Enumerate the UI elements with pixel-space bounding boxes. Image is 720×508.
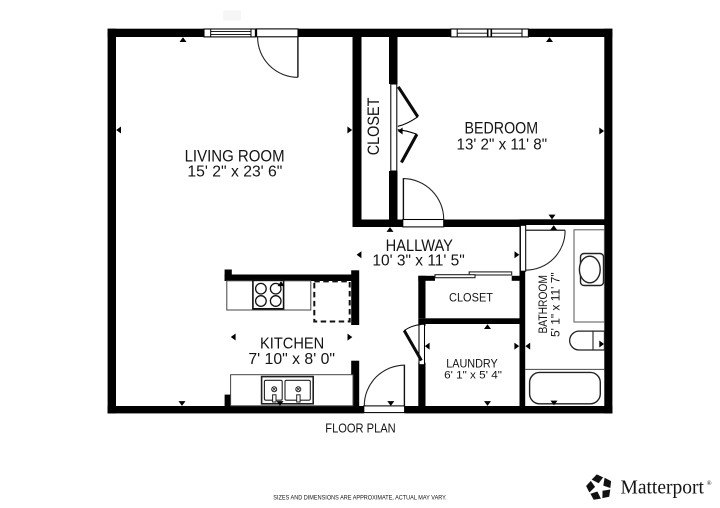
svg-text:10' 3" x 11' 5": 10' 3" x 11' 5" (372, 253, 464, 270)
svg-text:Matterport: Matterport (621, 477, 705, 498)
svg-text:®: ® (707, 480, 712, 487)
svg-text:6' 1" x 5' 4": 6' 1" x 5' 4" (444, 370, 502, 382)
svg-text:KITCHEN: KITCHEN (260, 335, 324, 352)
svg-text:BEDROOM: BEDROOM (465, 120, 539, 138)
svg-text:FLOOR PLAN: FLOOR PLAN (325, 421, 395, 436)
svg-text:SIZES AND DIMENSIONS ARE APPRO: SIZES AND DIMENSIONS ARE APPROXIMATE, AC… (273, 495, 446, 502)
svg-text:15' 2" x 23' 6": 15' 2" x 23' 6" (187, 163, 282, 180)
svg-text:5' 1" x 11' 7": 5' 1" x 11' 7" (549, 272, 563, 337)
svg-text:CLOSET: CLOSET (365, 98, 383, 156)
svg-text:13' 2" x 11' 8": 13' 2" x 11' 8" (457, 136, 548, 153)
svg-text:BATHROOM: BATHROOM (536, 275, 550, 334)
svg-text:7' 10" x 8' 0": 7' 10" x 8' 0" (248, 351, 335, 368)
svg-text:CLOSET: CLOSET (449, 293, 493, 305)
